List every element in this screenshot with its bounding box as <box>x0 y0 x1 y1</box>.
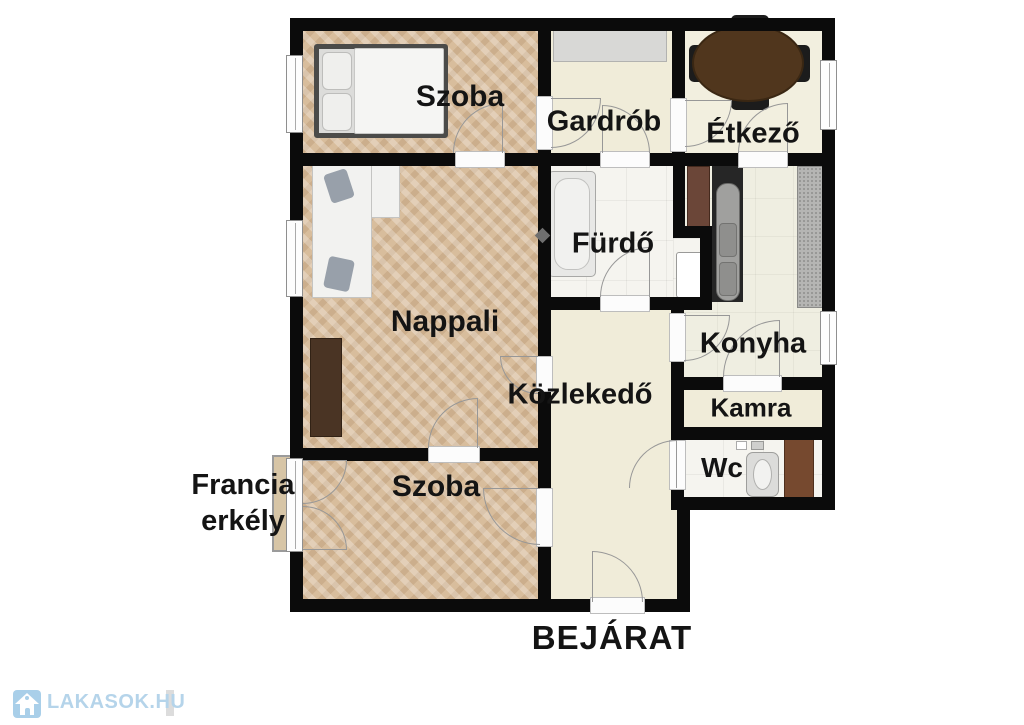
wc-cistern-item <box>751 441 764 450</box>
wall <box>538 148 551 358</box>
door-gap <box>428 446 480 463</box>
door-gap <box>723 375 782 392</box>
wall <box>671 427 835 440</box>
wall <box>671 377 725 390</box>
window <box>820 60 837 130</box>
room-label-kamra: Kamra <box>711 393 792 424</box>
wall <box>788 153 835 166</box>
room-label-szoba-top: Szoba <box>416 80 504 114</box>
entrance-label: BEJÁRAT <box>532 619 692 657</box>
house-icon <box>13 690 41 718</box>
wall <box>478 448 551 461</box>
watermark-text: LAKASOK.HU <box>47 691 185 714</box>
room-label-nappali: Nappali <box>391 305 499 339</box>
wall <box>672 18 685 100</box>
toilet-bowl <box>753 459 772 490</box>
washing-machine <box>784 434 814 498</box>
pillow <box>322 52 352 90</box>
wall <box>650 153 738 166</box>
door-gap <box>600 151 650 168</box>
room-label-kozlekedo: Közlekedő <box>507 379 652 412</box>
window <box>820 311 837 365</box>
sink-basin <box>719 262 737 296</box>
wall <box>538 545 551 612</box>
room-label-wc: Wc <box>701 452 743 484</box>
wall <box>780 377 835 390</box>
wall <box>505 153 600 166</box>
floor-plan-image: Szoba Gardrób Étkező Fürdő Nappali Konyh… <box>0 0 1024 725</box>
house-icon-door <box>25 708 30 715</box>
room-label-konyha: Konyha <box>700 328 806 361</box>
wall <box>538 297 600 310</box>
room-label-etkezo: Étkező <box>706 118 799 151</box>
room-label-gardrob: Gardrób <box>547 106 661 139</box>
wardrobe-shelf <box>553 26 667 62</box>
window <box>286 55 303 133</box>
window <box>286 220 303 297</box>
door-gap <box>600 295 650 312</box>
tv-cabinet <box>310 338 342 437</box>
house-icon-window <box>25 696 29 700</box>
french-balcony-label-line1: Francia <box>178 467 308 503</box>
room-label-furdo: Fürdő <box>572 228 654 261</box>
wall <box>677 497 835 510</box>
wall <box>290 153 455 166</box>
pillow <box>322 93 352 131</box>
wc-cistern-item <box>736 441 747 450</box>
wall <box>538 18 551 98</box>
door-gap <box>455 151 505 168</box>
wall <box>290 18 835 31</box>
room-label-szoba-bottom: Szoba <box>392 470 480 504</box>
door-gap <box>738 151 788 168</box>
wall <box>671 488 684 510</box>
fridge <box>687 166 710 228</box>
french-balcony-label-line2: erkély <box>178 503 308 539</box>
wall <box>677 497 690 612</box>
sink-basin <box>719 223 737 257</box>
french-balcony-label: Francia erkély <box>178 467 308 539</box>
dining-table <box>692 24 804 102</box>
